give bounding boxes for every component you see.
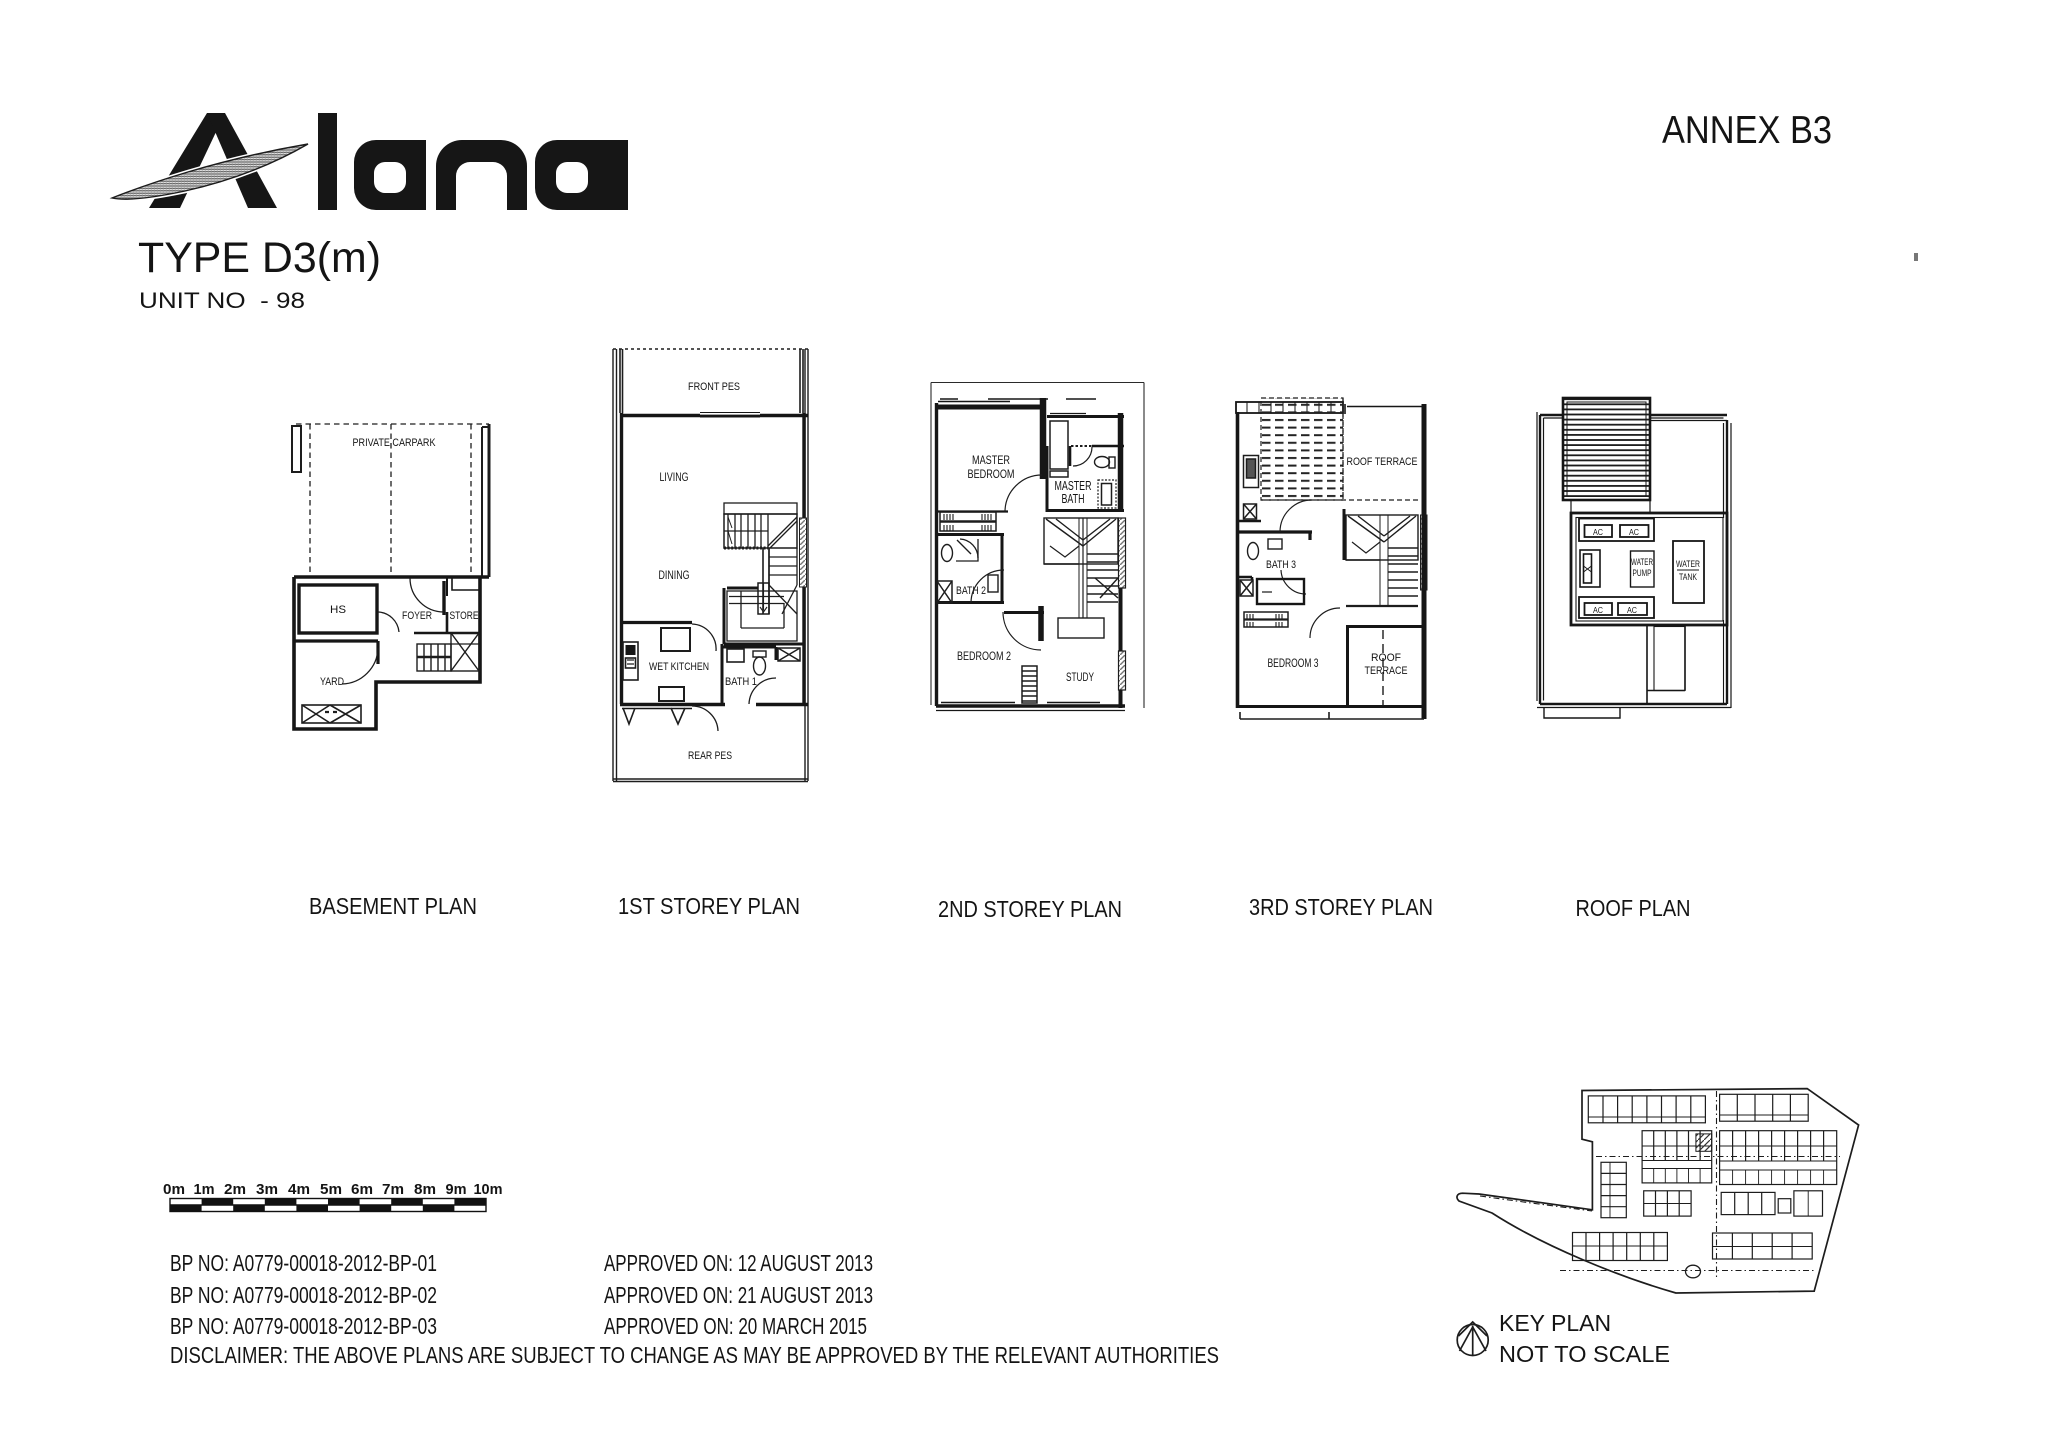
svg-text:DINING: DINING bbox=[659, 570, 690, 582]
svg-text:8m: 8m bbox=[414, 1181, 436, 1198]
svg-text:4m: 4m bbox=[288, 1181, 310, 1198]
svg-text:LIVING: LIVING bbox=[660, 472, 689, 484]
svg-text:3m: 3m bbox=[256, 1181, 278, 1198]
svg-text:0m: 0m bbox=[163, 1181, 185, 1198]
svg-text:9m: 9m bbox=[446, 1181, 467, 1198]
svg-text:PRIVATE CARPARK: PRIVATE CARPARK bbox=[353, 437, 437, 449]
svg-text:7m: 7m bbox=[382, 1181, 404, 1198]
svg-text:AC: AC bbox=[1593, 605, 1603, 615]
svg-text:PUMP: PUMP bbox=[1633, 568, 1652, 578]
svg-text:10m: 10m bbox=[474, 1181, 503, 1198]
svg-text:BATH: BATH bbox=[1062, 491, 1085, 506]
svg-text:STUDY: STUDY bbox=[1066, 672, 1094, 684]
svg-text:UNIT NO - 98: UNIT NO - 98 bbox=[139, 288, 305, 313]
svg-text:5m: 5m bbox=[320, 1181, 342, 1198]
svg-text:KEY PLAN: KEY PLAN bbox=[1499, 1310, 1611, 1336]
svg-text:WATER: WATER bbox=[1631, 557, 1653, 567]
svg-text:REAR PES: REAR PES bbox=[688, 750, 732, 762]
svg-text:BEDROOM 3: BEDROOM 3 bbox=[1268, 658, 1319, 670]
svg-text:AC: AC bbox=[1627, 605, 1637, 615]
svg-text:BASEMENT PLAN: BASEMENT PLAN bbox=[309, 893, 477, 919]
svg-text:BEDROOM 2: BEDROOM 2 bbox=[957, 651, 1011, 663]
svg-text:TANK: TANK bbox=[1679, 572, 1697, 582]
svg-text:BATH 2: BATH 2 bbox=[956, 585, 986, 597]
svg-text:3RD STOREY PLAN: 3RD STOREY PLAN bbox=[1249, 894, 1433, 920]
svg-text:BEDROOM: BEDROOM bbox=[968, 469, 1015, 481]
svg-text:ANNEX B3: ANNEX B3 bbox=[1662, 109, 1832, 152]
svg-text:ROOF PLAN: ROOF PLAN bbox=[1576, 895, 1691, 921]
svg-text:APPROVED ON: 20 MARCH 2015: APPROVED ON: 20 MARCH 2015 bbox=[604, 1313, 867, 1339]
svg-text:FRONT PES: FRONT PES bbox=[688, 381, 740, 393]
svg-text:APPROVED ON: 12 AUGUST 2013: APPROVED ON: 12 AUGUST 2013 bbox=[604, 1250, 873, 1276]
svg-text:2m: 2m bbox=[224, 1181, 246, 1198]
svg-text:ROOF TERRACE: ROOF TERRACE bbox=[1347, 456, 1418, 468]
svg-text:BP NO: A0779-00018-2012-BP-02: BP NO: A0779-00018-2012-BP-02 bbox=[170, 1282, 437, 1308]
svg-text:YARD: YARD bbox=[320, 676, 344, 688]
svg-text:NOT TO SCALE: NOT TO SCALE bbox=[1499, 1341, 1670, 1367]
svg-text:BP NO: A0779-00018-2012-BP-01: BP NO: A0779-00018-2012-BP-01 bbox=[170, 1250, 437, 1276]
svg-text:TERRACE: TERRACE bbox=[1365, 665, 1408, 677]
svg-text:TYPE D3(m): TYPE D3(m) bbox=[138, 234, 381, 282]
svg-text:STORE: STORE bbox=[450, 610, 479, 622]
svg-text:AC: AC bbox=[1593, 527, 1603, 537]
svg-text:BATH 1: BATH 1 bbox=[725, 676, 757, 688]
svg-text:DISCLAIMER: THE ABOVE PLANS AR: DISCLAIMER: THE ABOVE PLANS ARE SUBJECT … bbox=[170, 1342, 1219, 1368]
svg-text:BATH 3: BATH 3 bbox=[1266, 559, 1296, 571]
svg-text:WATER: WATER bbox=[1676, 559, 1700, 569]
svg-text:ROOF: ROOF bbox=[1371, 652, 1401, 664]
svg-text:AC: AC bbox=[1629, 527, 1639, 537]
svg-text:1ST STOREY PLAN: 1ST STOREY PLAN bbox=[618, 893, 800, 919]
svg-text:BP NO: A0779-00018-2012-BP-03: BP NO: A0779-00018-2012-BP-03 bbox=[170, 1313, 437, 1339]
svg-text:6m: 6m bbox=[351, 1181, 373, 1198]
svg-text:APPROVED ON: 21 AUGUST 2013: APPROVED ON: 21 AUGUST 2013 bbox=[604, 1282, 873, 1308]
svg-text:WET KITCHEN: WET KITCHEN bbox=[649, 661, 709, 673]
svg-text:1m: 1m bbox=[194, 1181, 215, 1198]
svg-text:HS: HS bbox=[330, 604, 346, 616]
svg-text:MASTER: MASTER bbox=[972, 455, 1010, 467]
svg-text:FOYER: FOYER bbox=[402, 610, 432, 622]
svg-text:2ND STOREY PLAN: 2ND STOREY PLAN bbox=[938, 896, 1122, 922]
